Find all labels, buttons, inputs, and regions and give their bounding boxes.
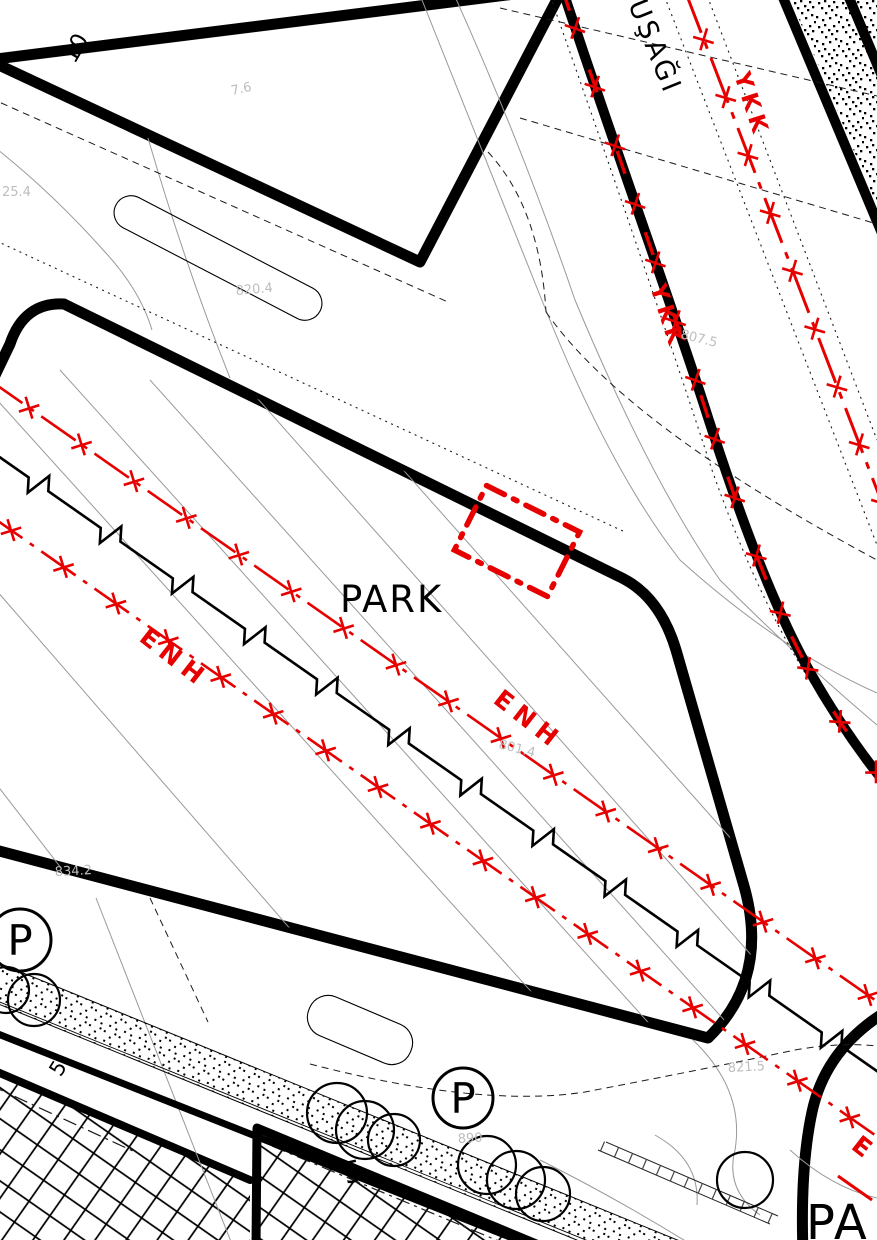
red-x-tick (593, 800, 617, 824)
red-x-tick (383, 653, 407, 677)
red-x-tick (848, 433, 870, 456)
block-crosshatch-southwest (0, 1068, 250, 1240)
red-x-tick (680, 996, 704, 1020)
red-x-tick (826, 375, 848, 398)
ykk-label-line: YKK (728, 68, 774, 141)
red-x-tick (0, 518, 23, 542)
red-x-tick (855, 983, 877, 1007)
elevation-label: 801.4 (497, 737, 537, 761)
dimension-label: 10 (57, 29, 94, 67)
enh-label-a: ENH (134, 622, 215, 694)
elevation-label: 821.5 (727, 1059, 765, 1076)
red-x-tick (226, 543, 250, 567)
red-x-tick (51, 555, 75, 579)
elevation-label: 834.2 (54, 863, 92, 880)
red-x-tick (837, 1106, 861, 1130)
red-x-tick (803, 947, 827, 971)
roadside-strip-northeast (779, 0, 877, 250)
red-x-tick (627, 959, 651, 983)
red-x-tick (436, 690, 460, 714)
parking-letter: P (7, 916, 32, 965)
enh-label-partial: E (846, 1130, 877, 1163)
red-x-tick (103, 592, 127, 616)
red-x-tick (870, 491, 877, 514)
red-x-tick (365, 775, 389, 799)
park-label: PARK (340, 578, 443, 621)
red-x-tick (541, 763, 565, 787)
dimension-label-faint: 7.6 (230, 80, 253, 99)
zoning-plan-canvas: P P PARK PA ENH ENH E YKK YKK UŞAĞI 10 5… (0, 0, 877, 1240)
park-area (0, 304, 752, 1038)
stepped-path (598, 1142, 778, 1224)
red-x-tick (418, 812, 442, 836)
red-x-tick (69, 433, 93, 457)
red-x-tick (737, 144, 759, 167)
parking-symbol: P (0, 909, 51, 971)
red-x-tick (698, 873, 722, 897)
elevation-label: 890 (457, 1131, 483, 1147)
red-x-tick (692, 28, 714, 51)
red-x-tick (470, 849, 494, 873)
red-x-tick (279, 579, 303, 603)
elevation-label: 25.4 (2, 185, 31, 200)
red-x-tick (121, 469, 145, 493)
red-x-tick (16, 396, 40, 420)
red-x-tick (313, 739, 337, 763)
red-x-tick (803, 317, 825, 340)
parking-symbol: P (433, 1068, 493, 1128)
red-x-tick (781, 260, 803, 283)
red-x-tick (732, 1032, 756, 1056)
red-x-tick (785, 1069, 809, 1093)
parking-letter: P (450, 1074, 475, 1123)
elevation-label: 820.4 (235, 281, 273, 299)
park-label-partial: PA (806, 1195, 869, 1240)
red-x-tick (759, 202, 781, 225)
red-x-tick (575, 922, 599, 946)
